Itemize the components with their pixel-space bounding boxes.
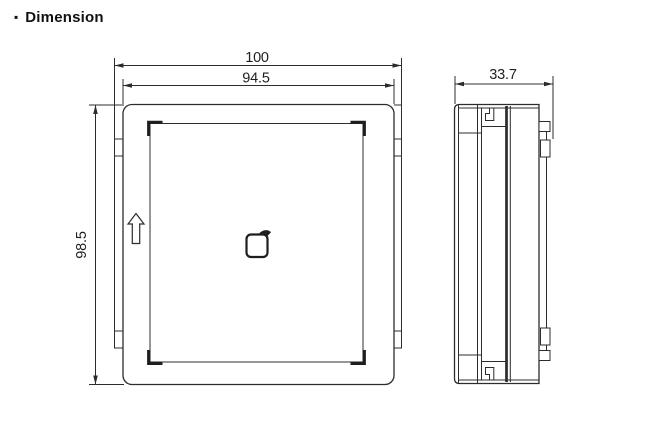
- side-back-clips: [539, 122, 550, 361]
- front-left-flange: [115, 105, 124, 348]
- side-view-drawing: [455, 105, 551, 384]
- dimension-drawing-page: ▪ Dimension: [0, 0, 645, 428]
- side-body-outline: [455, 105, 540, 384]
- dim-label-98-5: 98.5: [74, 231, 90, 259]
- front-right-flange: [394, 105, 402, 348]
- dimension-height: 98.5: [74, 105, 124, 385]
- technical-drawing: 100 94.5 98.5: [0, 0, 645, 428]
- front-view-drawing: [115, 105, 402, 385]
- dim-label-94-5: 94.5: [242, 71, 270, 87]
- dim-label-100: 100: [245, 50, 269, 66]
- dim-label-33-7: 33.7: [489, 67, 517, 83]
- dimension-width-inner: 94.5: [123, 71, 394, 105]
- front-body-outline: [123, 105, 394, 385]
